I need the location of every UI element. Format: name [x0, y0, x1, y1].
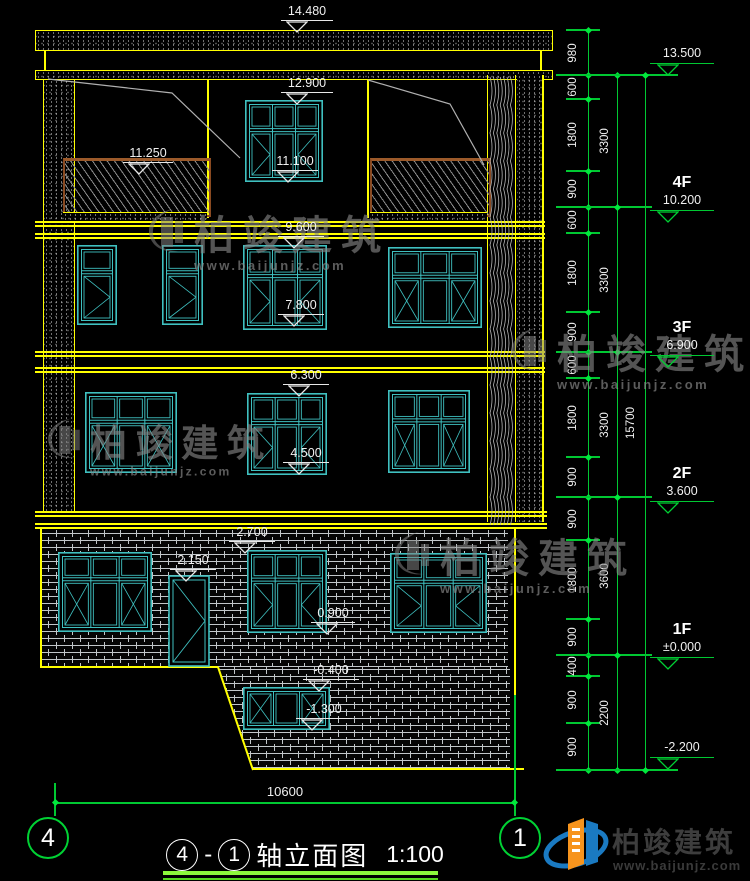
title-text: 轴立面图 — [256, 836, 368, 873]
dim-segment: 900 — [566, 717, 580, 777]
level-marker-triangle — [283, 237, 305, 249]
window — [77, 245, 117, 325]
watermark: 柏竣建筑www.baijunjz.com — [440, 526, 636, 596]
elevation-marker-triangle — [657, 64, 679, 76]
level-marker-triangle — [128, 163, 150, 175]
dim-floor-height: 2200 — [598, 683, 612, 743]
elevation-value: ±0.000 — [646, 640, 718, 654]
stone-pilaster — [487, 75, 516, 522]
watermark: 柏竣建筑www.baijunjz.com — [90, 413, 272, 478]
dim-floor-height: 3300 — [598, 250, 612, 310]
dim-tick — [585, 615, 592, 622]
elevation-marker-triangle — [657, 658, 679, 670]
level-value: 7.800 — [270, 298, 332, 312]
axis-bubble-left: 4 — [27, 817, 69, 859]
dim-tick — [614, 493, 621, 500]
dim-segment: 1800 — [566, 243, 580, 303]
level-marker-triangle — [308, 680, 330, 692]
cad-elevation-canvas: 4 1 4 - 1 轴立面图 1:100 柏竣建筑 www.baijunjz.c… — [0, 0, 750, 881]
level-marker-triangle — [234, 542, 256, 554]
floor-label: 2F — [650, 465, 714, 483]
elevation-value: 13.500 — [646, 46, 718, 60]
elevation-value: 3.600 — [646, 484, 718, 498]
dim-line-bottom — [55, 802, 515, 804]
dim-tick — [585, 308, 592, 315]
elevation-value: 10.200 — [646, 193, 718, 207]
level-value: 2.150 — [162, 553, 224, 567]
floor-label: 1F — [650, 621, 714, 639]
dim-segment: 1800 — [566, 388, 580, 448]
elevation-marker-triangle — [657, 502, 679, 514]
level-value: 11.250 — [115, 146, 181, 160]
elevation-marker-triangle — [657, 356, 679, 368]
dim-tick — [585, 672, 592, 679]
level-marker-triangle — [286, 21, 308, 33]
dim-floor-height: 3300 — [598, 395, 612, 455]
level-value: 6.300 — [275, 368, 337, 382]
dim-floor-height: 3300 — [598, 111, 612, 171]
drawing-title: 4 - 1 轴立面图 1:100 — [150, 836, 460, 873]
level-marker-triangle — [301, 719, 323, 731]
level-value: 0.900 — [303, 606, 363, 620]
level-marker-triangle — [175, 570, 197, 582]
elevation-value: 6.900 — [646, 338, 718, 352]
dim-overall-width: 10600 — [255, 785, 315, 799]
entry-door — [168, 575, 210, 667]
dim-chain-line — [617, 75, 618, 770]
level-value: 11.100 — [264, 154, 326, 168]
corner-pilaster-right — [517, 75, 544, 522]
dim-chain-line — [645, 75, 646, 770]
title-scale: 1:100 — [386, 841, 444, 868]
level-value: 2.700 — [221, 525, 283, 539]
dim-tick — [642, 71, 649, 78]
level-value: 14.480 — [273, 4, 341, 18]
window — [247, 550, 327, 633]
level-marker-triangle — [286, 93, 308, 105]
level-value: 12.900 — [273, 76, 341, 90]
floor-label: 4F — [650, 174, 714, 192]
window — [388, 247, 482, 328]
level-value: 4.500 — [275, 446, 337, 460]
dim-tick — [614, 651, 621, 658]
level-marker-triangle — [288, 385, 310, 397]
dim-segment: 600 — [566, 190, 580, 250]
elevation-value: -2.200 — [646, 740, 718, 754]
dim-tick — [585, 167, 592, 174]
dim-tick — [585, 719, 592, 726]
level-value: -1.300 — [288, 702, 360, 716]
roof-eave-slab — [35, 30, 553, 51]
level-value: -0.400 — [295, 663, 367, 677]
watermark-brand: 柏竣建筑 — [90, 413, 272, 467]
dim-segment: 1800 — [566, 105, 580, 165]
logo-site: www.baijunjz.com — [612, 858, 741, 873]
floor-label: 3F — [650, 319, 714, 337]
window — [388, 390, 470, 473]
level-marker-triangle — [288, 463, 310, 475]
logo-brand: 柏竣建筑 — [612, 826, 736, 858]
company-logo: 柏竣建筑 www.baijunjz.com — [536, 810, 748, 878]
elevation-marker-triangle — [657, 758, 679, 770]
dim-overall-height: 15700 — [624, 393, 638, 453]
watermark-brand: 柏竣建筑 — [440, 526, 636, 584]
axis-bubble-right: 1 — [499, 817, 541, 859]
level-marker-triangle — [316, 623, 338, 635]
title-axis-left: 4 — [166, 839, 198, 871]
level-marker-triangle — [277, 171, 299, 183]
dim-tick — [614, 203, 621, 210]
elevation-marker-triangle — [657, 211, 679, 223]
dim-tick — [585, 229, 592, 236]
level-value: 9.600 — [270, 220, 332, 234]
dim-tick — [511, 799, 518, 806]
dim-tick — [642, 766, 649, 773]
dim-tick — [585, 95, 592, 102]
window — [58, 552, 152, 632]
title-axis-right: 1 — [218, 839, 250, 871]
level-marker-triangle — [283, 315, 305, 327]
dim-tick — [585, 453, 592, 460]
dim-tick — [585, 26, 592, 33]
